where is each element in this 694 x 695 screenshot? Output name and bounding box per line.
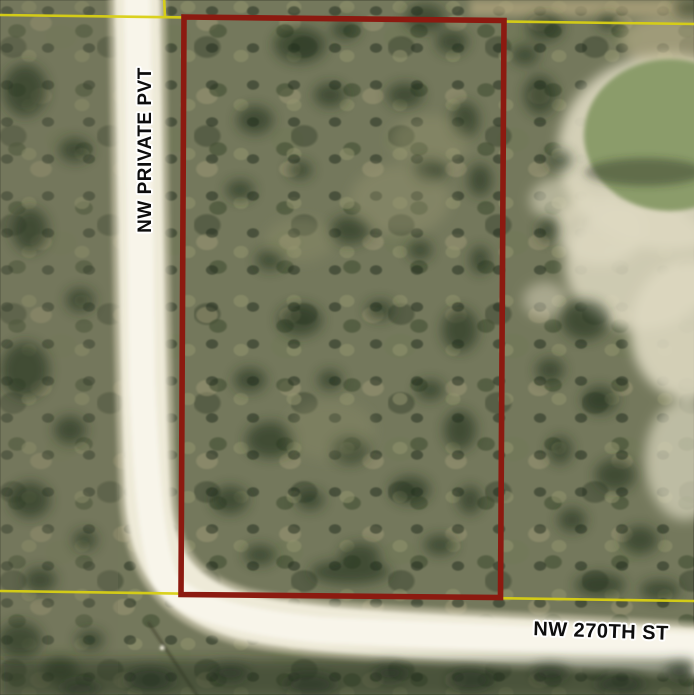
south-scrub-strip <box>0 660 694 695</box>
north-field <box>470 0 694 16</box>
map-overlay <box>0 0 694 695</box>
aerial-map: NW PRIVATE PVT NW 270TH ST <box>0 0 694 695</box>
street-label-nw-private-pvt: NW PRIVATE PVT <box>135 67 157 233</box>
street-label-nw-270th-st: NW 270TH ST <box>533 618 669 646</box>
west-boundary-line <box>164 0 165 18</box>
